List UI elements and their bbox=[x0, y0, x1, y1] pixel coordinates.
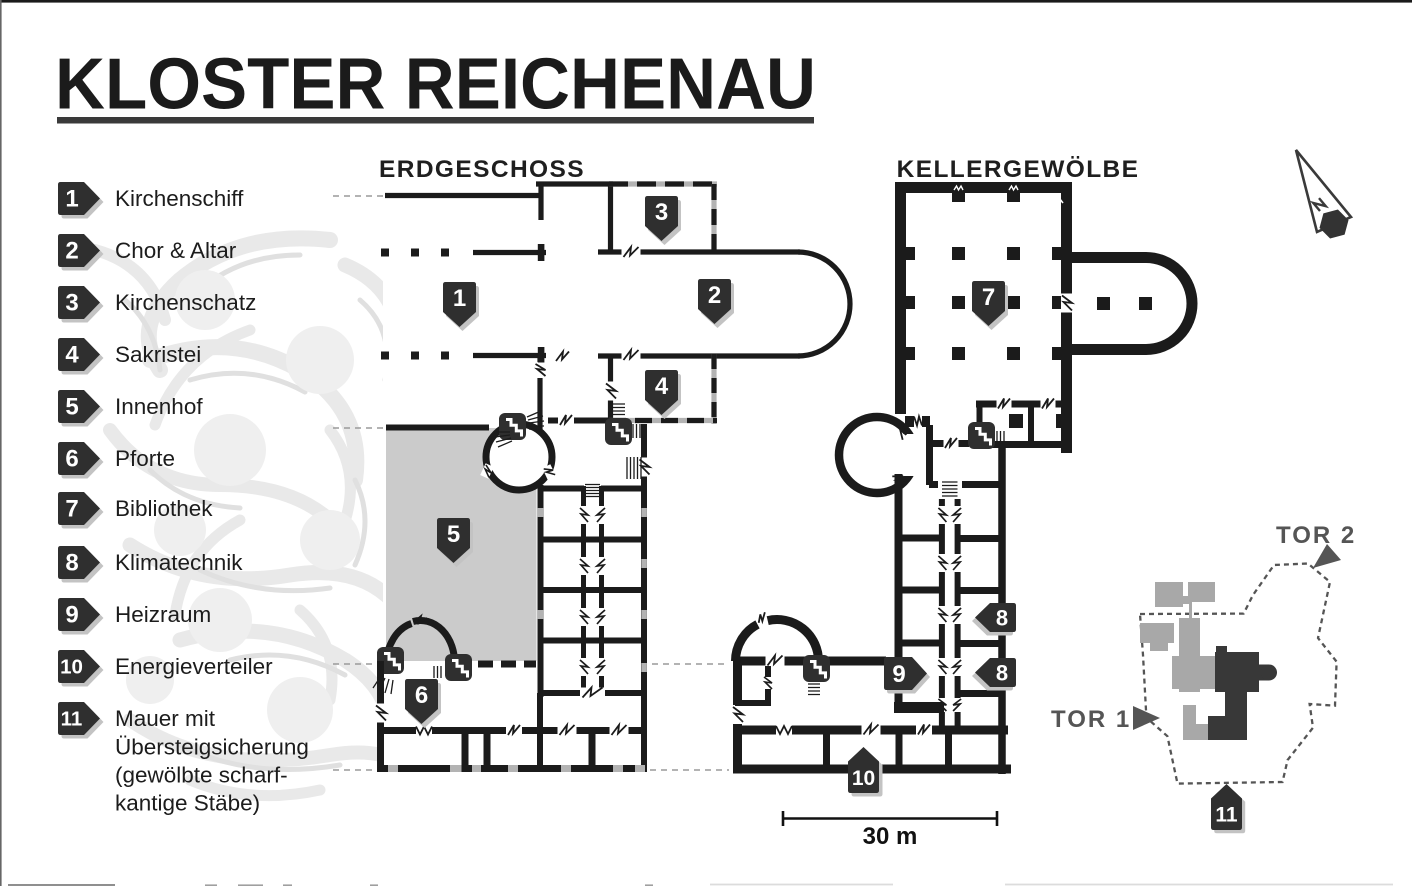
svg-text:11: 11 bbox=[61, 708, 83, 731]
svg-text:Bibliothek: Bibliothek bbox=[115, 496, 213, 521]
svg-text:9: 9 bbox=[892, 661, 905, 688]
svg-text:Kirchenschatz: Kirchenschatz bbox=[115, 290, 256, 315]
svg-text:7: 7 bbox=[982, 284, 995, 311]
svg-text:TOR 1: TOR 1 bbox=[1051, 706, 1131, 733]
svg-text:9: 9 bbox=[65, 602, 78, 629]
svg-text:6: 6 bbox=[65, 446, 78, 473]
svg-text:KELLERGEWÖLBE: KELLERGEWÖLBE bbox=[897, 156, 1140, 183]
svg-text:(gewölbte scharf-: (gewölbte scharf- bbox=[115, 763, 288, 788]
svg-text:ERDGESCHOSS: ERDGESCHOSS bbox=[379, 156, 585, 183]
svg-text:TOR 2: TOR 2 bbox=[1276, 522, 1356, 549]
svg-text:10: 10 bbox=[60, 656, 83, 679]
svg-text:30 m: 30 m bbox=[863, 823, 918, 850]
svg-text:2: 2 bbox=[708, 282, 721, 309]
svg-text:Übersteigsicherung: Übersteigsicherung bbox=[115, 735, 309, 760]
svg-text:8: 8 bbox=[65, 550, 78, 577]
svg-text:3: 3 bbox=[65, 290, 78, 317]
svg-text:Innenhof: Innenhof bbox=[115, 394, 203, 419]
svg-text:11: 11 bbox=[1215, 804, 1238, 827]
svg-text:Kirchenschiff: Kirchenschiff bbox=[115, 186, 244, 211]
svg-text:Pforte: Pforte bbox=[115, 446, 175, 471]
svg-text:1: 1 bbox=[453, 285, 466, 312]
svg-text:Klimatechnik: Klimatechnik bbox=[115, 550, 243, 575]
svg-text:kantige Stäbe): kantige Stäbe) bbox=[115, 791, 260, 816]
svg-text:5: 5 bbox=[65, 394, 78, 421]
svg-text:8: 8 bbox=[996, 606, 1008, 631]
svg-text:Sakristei: Sakristei bbox=[115, 342, 201, 367]
svg-text:5: 5 bbox=[447, 521, 460, 548]
svg-text:1: 1 bbox=[65, 186, 78, 213]
svg-text:7: 7 bbox=[65, 496, 78, 523]
svg-text:4: 4 bbox=[655, 373, 669, 400]
svg-text:2: 2 bbox=[65, 238, 78, 265]
svg-text:KLOSTER REICHENAU: KLOSTER REICHENAU bbox=[55, 44, 816, 125]
svg-text:10: 10 bbox=[852, 767, 875, 790]
svg-text:Heizraum: Heizraum bbox=[115, 602, 211, 627]
svg-text:6: 6 bbox=[415, 682, 428, 709]
svg-text:Chor & Altar: Chor & Altar bbox=[115, 238, 237, 263]
svg-text:Mauer mit: Mauer mit bbox=[115, 706, 216, 731]
svg-text:3: 3 bbox=[655, 199, 668, 226]
svg-text:4: 4 bbox=[65, 342, 79, 369]
svg-text:Energieverteiler: Energieverteiler bbox=[115, 654, 273, 679]
svg-text:8: 8 bbox=[996, 661, 1008, 686]
